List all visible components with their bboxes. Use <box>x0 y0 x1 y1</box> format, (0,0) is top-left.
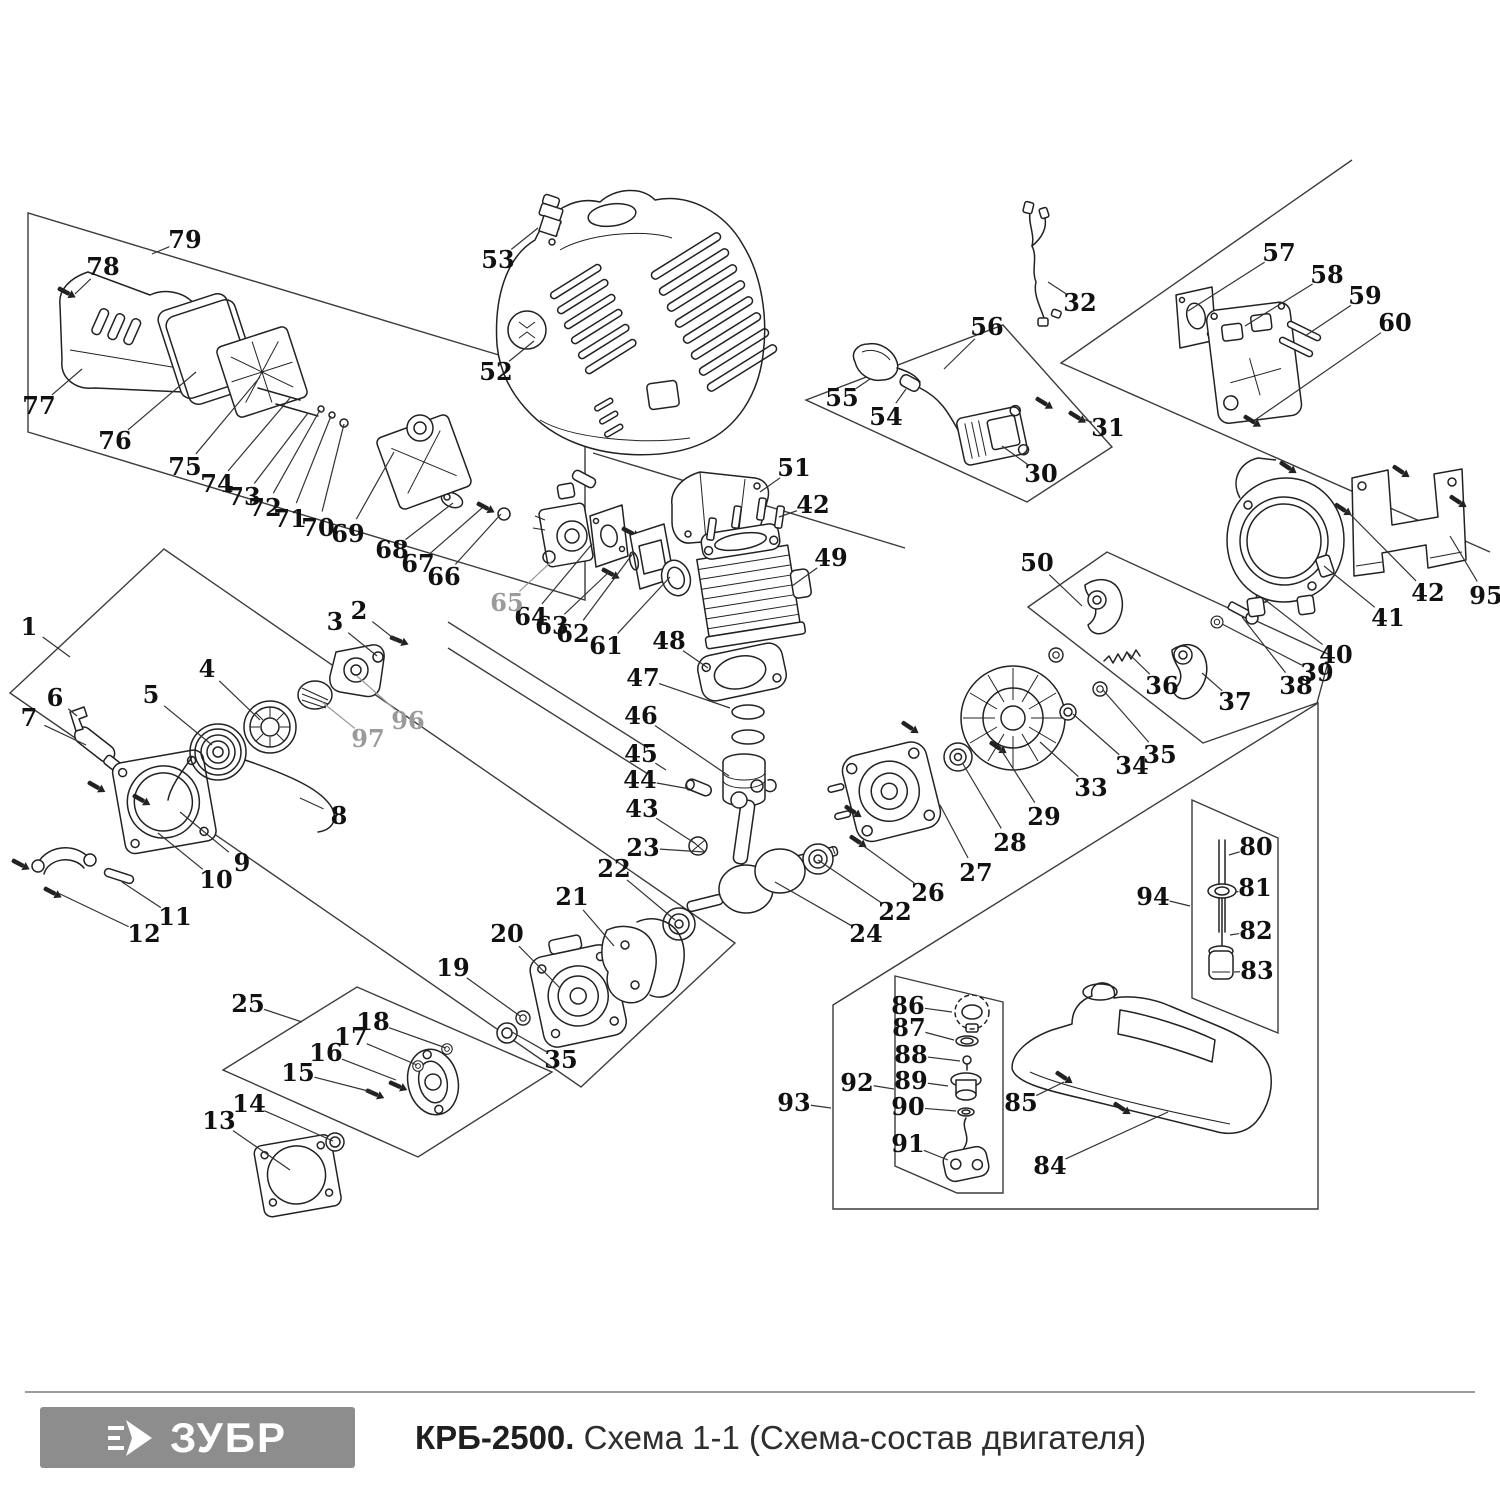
part-number-label: 82 <box>1239 916 1272 945</box>
part-number-label: 54 <box>869 402 902 431</box>
cap-seal-part <box>958 1108 974 1116</box>
part-number-label: 69 <box>331 519 364 548</box>
leader-line <box>627 880 675 920</box>
leader-line <box>655 726 729 776</box>
part-number-label: 1 <box>21 612 38 641</box>
part-number-label: 53 <box>481 245 514 274</box>
part-number-label: 58 <box>1310 260 1343 289</box>
part-number-label: 36 <box>1145 671 1178 700</box>
leader-line <box>1188 262 1265 311</box>
leader-line <box>300 798 324 809</box>
leader-line <box>122 882 161 908</box>
part-number-label: 93 <box>777 1088 810 1117</box>
part-number-label: 84 <box>1033 1151 1066 1180</box>
part-number-label: 95 <box>1469 581 1500 610</box>
starter-pulley-part <box>244 701 296 753</box>
schema-subtitle: Схема 1-1 (Схема-состав двигателя) <box>574 1419 1146 1457</box>
part-number-label: 59 <box>1348 281 1381 310</box>
fuel-grommet-part <box>1208 884 1236 898</box>
part-number-label: 13 <box>202 1106 235 1135</box>
part-number-label: 9 <box>234 848 251 877</box>
leader-line <box>1242 617 1286 673</box>
part-number-label: 6 <box>47 683 64 712</box>
part-number-label: 40 <box>1319 640 1352 669</box>
leader-line <box>583 910 614 946</box>
starter-housing-part <box>111 749 218 856</box>
part-number-label: 47 <box>626 663 659 692</box>
cap-washer-part <box>956 1036 978 1046</box>
cap-retainer-part <box>941 1145 990 1183</box>
part-number-label: 22 <box>878 897 911 926</box>
leader-line <box>467 978 520 1016</box>
part-number-label: 14 <box>232 1089 265 1118</box>
leader-line <box>818 860 881 902</box>
part-number-label: 65 <box>490 588 523 617</box>
part-number-label: 43 <box>625 794 658 823</box>
wire-harness-part <box>1023 201 1062 326</box>
part-number-label: 57 <box>1262 238 1295 267</box>
part-number-label: 20 <box>490 919 523 948</box>
diagram-title: КРБ-2500. Схема 1-1 (Схема-состав двигат… <box>415 1407 1146 1468</box>
part-number-label: 19 <box>436 953 469 982</box>
part-number-label: 4 <box>199 654 216 683</box>
part-number-label: 80 <box>1239 832 1272 861</box>
leader-line <box>265 1111 333 1141</box>
leader-line <box>940 805 968 858</box>
leader-line <box>1065 1112 1168 1159</box>
part-number-label: 26 <box>911 878 944 907</box>
leader-line <box>367 1044 417 1065</box>
part-number-label: 45 <box>624 739 657 768</box>
cap-cord <box>964 1118 967 1148</box>
part-number-label: 74 <box>200 469 233 498</box>
parts-diagram-page: 1234567891011121314151617181920212223242… <box>0 0 1500 1500</box>
leader-line <box>264 1009 302 1022</box>
leader-line <box>356 452 394 519</box>
exploded-parts-diagram: 1234567891011121314151617181920212223242… <box>0 0 1500 1500</box>
part-number-label: 83 <box>1240 956 1273 985</box>
part-number-label: 32 <box>1063 288 1096 317</box>
leader-line <box>1230 934 1239 935</box>
leader-line <box>775 882 851 926</box>
fuel-filter-part <box>1209 946 1233 979</box>
part-number-label: 60 <box>1378 308 1411 337</box>
leader-line <box>564 572 609 614</box>
clutch-drum-part <box>402 1045 465 1120</box>
part-number-label: 91 <box>891 1129 924 1158</box>
leader-line <box>925 1008 952 1012</box>
leader-line <box>405 503 453 540</box>
part-number-label: 31 <box>1091 413 1124 442</box>
flywheel-part <box>961 666 1065 770</box>
lock-nut-part <box>326 1133 344 1151</box>
part-number-label: 41 <box>1371 603 1404 632</box>
leader-line <box>925 1032 954 1040</box>
leader-line <box>1305 305 1351 336</box>
leader-line <box>1229 852 1240 855</box>
leader-line <box>928 1083 948 1086</box>
leader-line <box>219 681 260 720</box>
part-number-label: 78 <box>86 252 119 281</box>
part-number-label: 89 <box>894 1066 927 1095</box>
brand-arrow-icon <box>108 1418 160 1458</box>
part-number-label: 28 <box>993 828 1026 857</box>
leader-line <box>811 1105 831 1108</box>
leader-line <box>928 1057 960 1061</box>
leader-line <box>874 1086 894 1089</box>
leader-line <box>512 1032 546 1052</box>
nut-66 <box>498 508 510 520</box>
clamp-bracket-part <box>32 848 96 874</box>
box-engine-core-edge-3 <box>448 648 648 774</box>
piston-ring-1 <box>732 705 764 719</box>
part-number-label: 52 <box>479 357 512 386</box>
part-number-label: 48 <box>652 626 685 655</box>
bracket-pin-part <box>103 868 134 885</box>
mount-bracket-part <box>1352 469 1466 576</box>
part-number-label: 2 <box>351 596 368 625</box>
part-number-label: 88 <box>894 1040 927 1069</box>
part-number-label: 76 <box>98 426 131 455</box>
leader-line <box>1073 714 1119 755</box>
brand-logo-text: ЗУБР <box>170 1414 287 1462</box>
piston-pin-part <box>684 777 713 797</box>
part-number-label: 35 <box>544 1045 577 1074</box>
cap-grommet-part <box>951 1073 981 1100</box>
part-number-label: 27 <box>959 858 992 887</box>
clutch-shoe-1 <box>1085 580 1122 634</box>
leader-line <box>164 706 212 745</box>
leader-line <box>519 561 552 591</box>
brand-logo: ЗУБР <box>40 1407 355 1468</box>
leader-line <box>1049 575 1082 606</box>
leader-line <box>925 1108 956 1111</box>
part-number-label: 61 <box>589 631 622 660</box>
part-number-label: 44 <box>623 765 656 794</box>
part-number-label: 56 <box>970 312 1003 341</box>
part-number-label: 8 <box>331 801 348 830</box>
part-number-label: 94 <box>1136 882 1169 911</box>
cap-valve-part <box>963 1056 971 1070</box>
flywheel-bearing <box>944 743 972 771</box>
part-number-label: 23 <box>626 833 659 862</box>
part-number-label: 49 <box>814 543 847 572</box>
leader-line <box>389 1028 446 1048</box>
leader-line <box>1170 901 1190 906</box>
part-number-label: 85 <box>1004 1088 1037 1117</box>
part-number-label: 11 <box>158 902 191 931</box>
part-number-label: 75 <box>168 452 201 481</box>
part-number-label: 46 <box>624 701 657 730</box>
part-number-label: 79 <box>168 225 201 254</box>
leader-line <box>858 842 914 883</box>
fan-cover-part <box>1227 458 1344 617</box>
leader-line <box>342 1059 396 1080</box>
leader-line <box>1222 624 1302 665</box>
part-number-label: 21 <box>555 882 588 911</box>
part-number-label: 35 <box>1143 740 1176 769</box>
part-number-label: 77 <box>22 391 55 420</box>
part-number-label: 42 <box>796 490 829 519</box>
piston-ring-2 <box>732 730 764 744</box>
part-number-label: 18 <box>356 1007 389 1036</box>
part-number-label: 97 <box>351 724 384 753</box>
part-number-label: 10 <box>199 865 232 894</box>
fuel-cap-part <box>955 995 989 1032</box>
part-number-label: 55 <box>825 383 858 412</box>
part-number-label: 37 <box>1218 687 1251 716</box>
carburetor-part <box>533 469 597 568</box>
part-number-label: 90 <box>891 1092 924 1121</box>
starter-handle-part <box>70 707 121 772</box>
part-number-label: 33 <box>1074 773 1107 802</box>
leader-line <box>455 514 501 564</box>
part-number-label: 29 <box>1027 802 1060 831</box>
leader-line <box>254 413 308 483</box>
part-number-label: 25 <box>231 989 264 1018</box>
leader-line <box>656 818 696 844</box>
clutch-spring <box>1104 650 1140 663</box>
carburetor-gasket-part <box>590 505 628 567</box>
crank-bearing-right <box>803 844 833 874</box>
leader-line <box>273 410 320 493</box>
part-number-label: 92 <box>840 1068 873 1097</box>
part-number-label: 3 <box>327 607 344 636</box>
box-ignition-group <box>806 325 1112 502</box>
part-number-label: 50 <box>1020 548 1053 577</box>
leader-line <box>1103 690 1149 742</box>
part-number-label: 81 <box>1238 873 1271 902</box>
model-number: КРБ-2500. <box>415 1419 574 1457</box>
part-number-label: 5 <box>143 680 160 709</box>
leader-line <box>657 783 690 789</box>
leader-line <box>372 622 397 641</box>
part-number-label: 42 <box>1411 578 1444 607</box>
part-number-label: 51 <box>777 453 810 482</box>
starter-cassette-part <box>298 681 332 709</box>
fuel-tank-part <box>1012 983 1271 1133</box>
part-number-label: 12 <box>127 919 160 948</box>
flywheel-nut <box>1060 704 1076 720</box>
part-number-label: 68 <box>375 535 408 564</box>
crankcase-right-part <box>822 739 944 850</box>
leader-line <box>58 893 129 927</box>
leader-line <box>924 1150 948 1160</box>
leader-line <box>944 339 975 369</box>
leader-line <box>322 424 344 512</box>
part-number-label: 7 <box>21 703 38 732</box>
footer-separator <box>25 1391 1475 1393</box>
leader-line <box>296 416 331 503</box>
washer-71 <box>329 412 335 418</box>
part-number-label: 87 <box>892 1013 925 1042</box>
leader-line <box>314 1077 372 1092</box>
leader-line <box>963 764 1001 828</box>
part-number-label: 30 <box>1024 459 1057 488</box>
leader-line <box>322 702 355 728</box>
part-number-label: 96 <box>391 706 424 735</box>
muffler-part <box>1205 301 1302 424</box>
cylinder-gasket-part <box>695 641 789 704</box>
